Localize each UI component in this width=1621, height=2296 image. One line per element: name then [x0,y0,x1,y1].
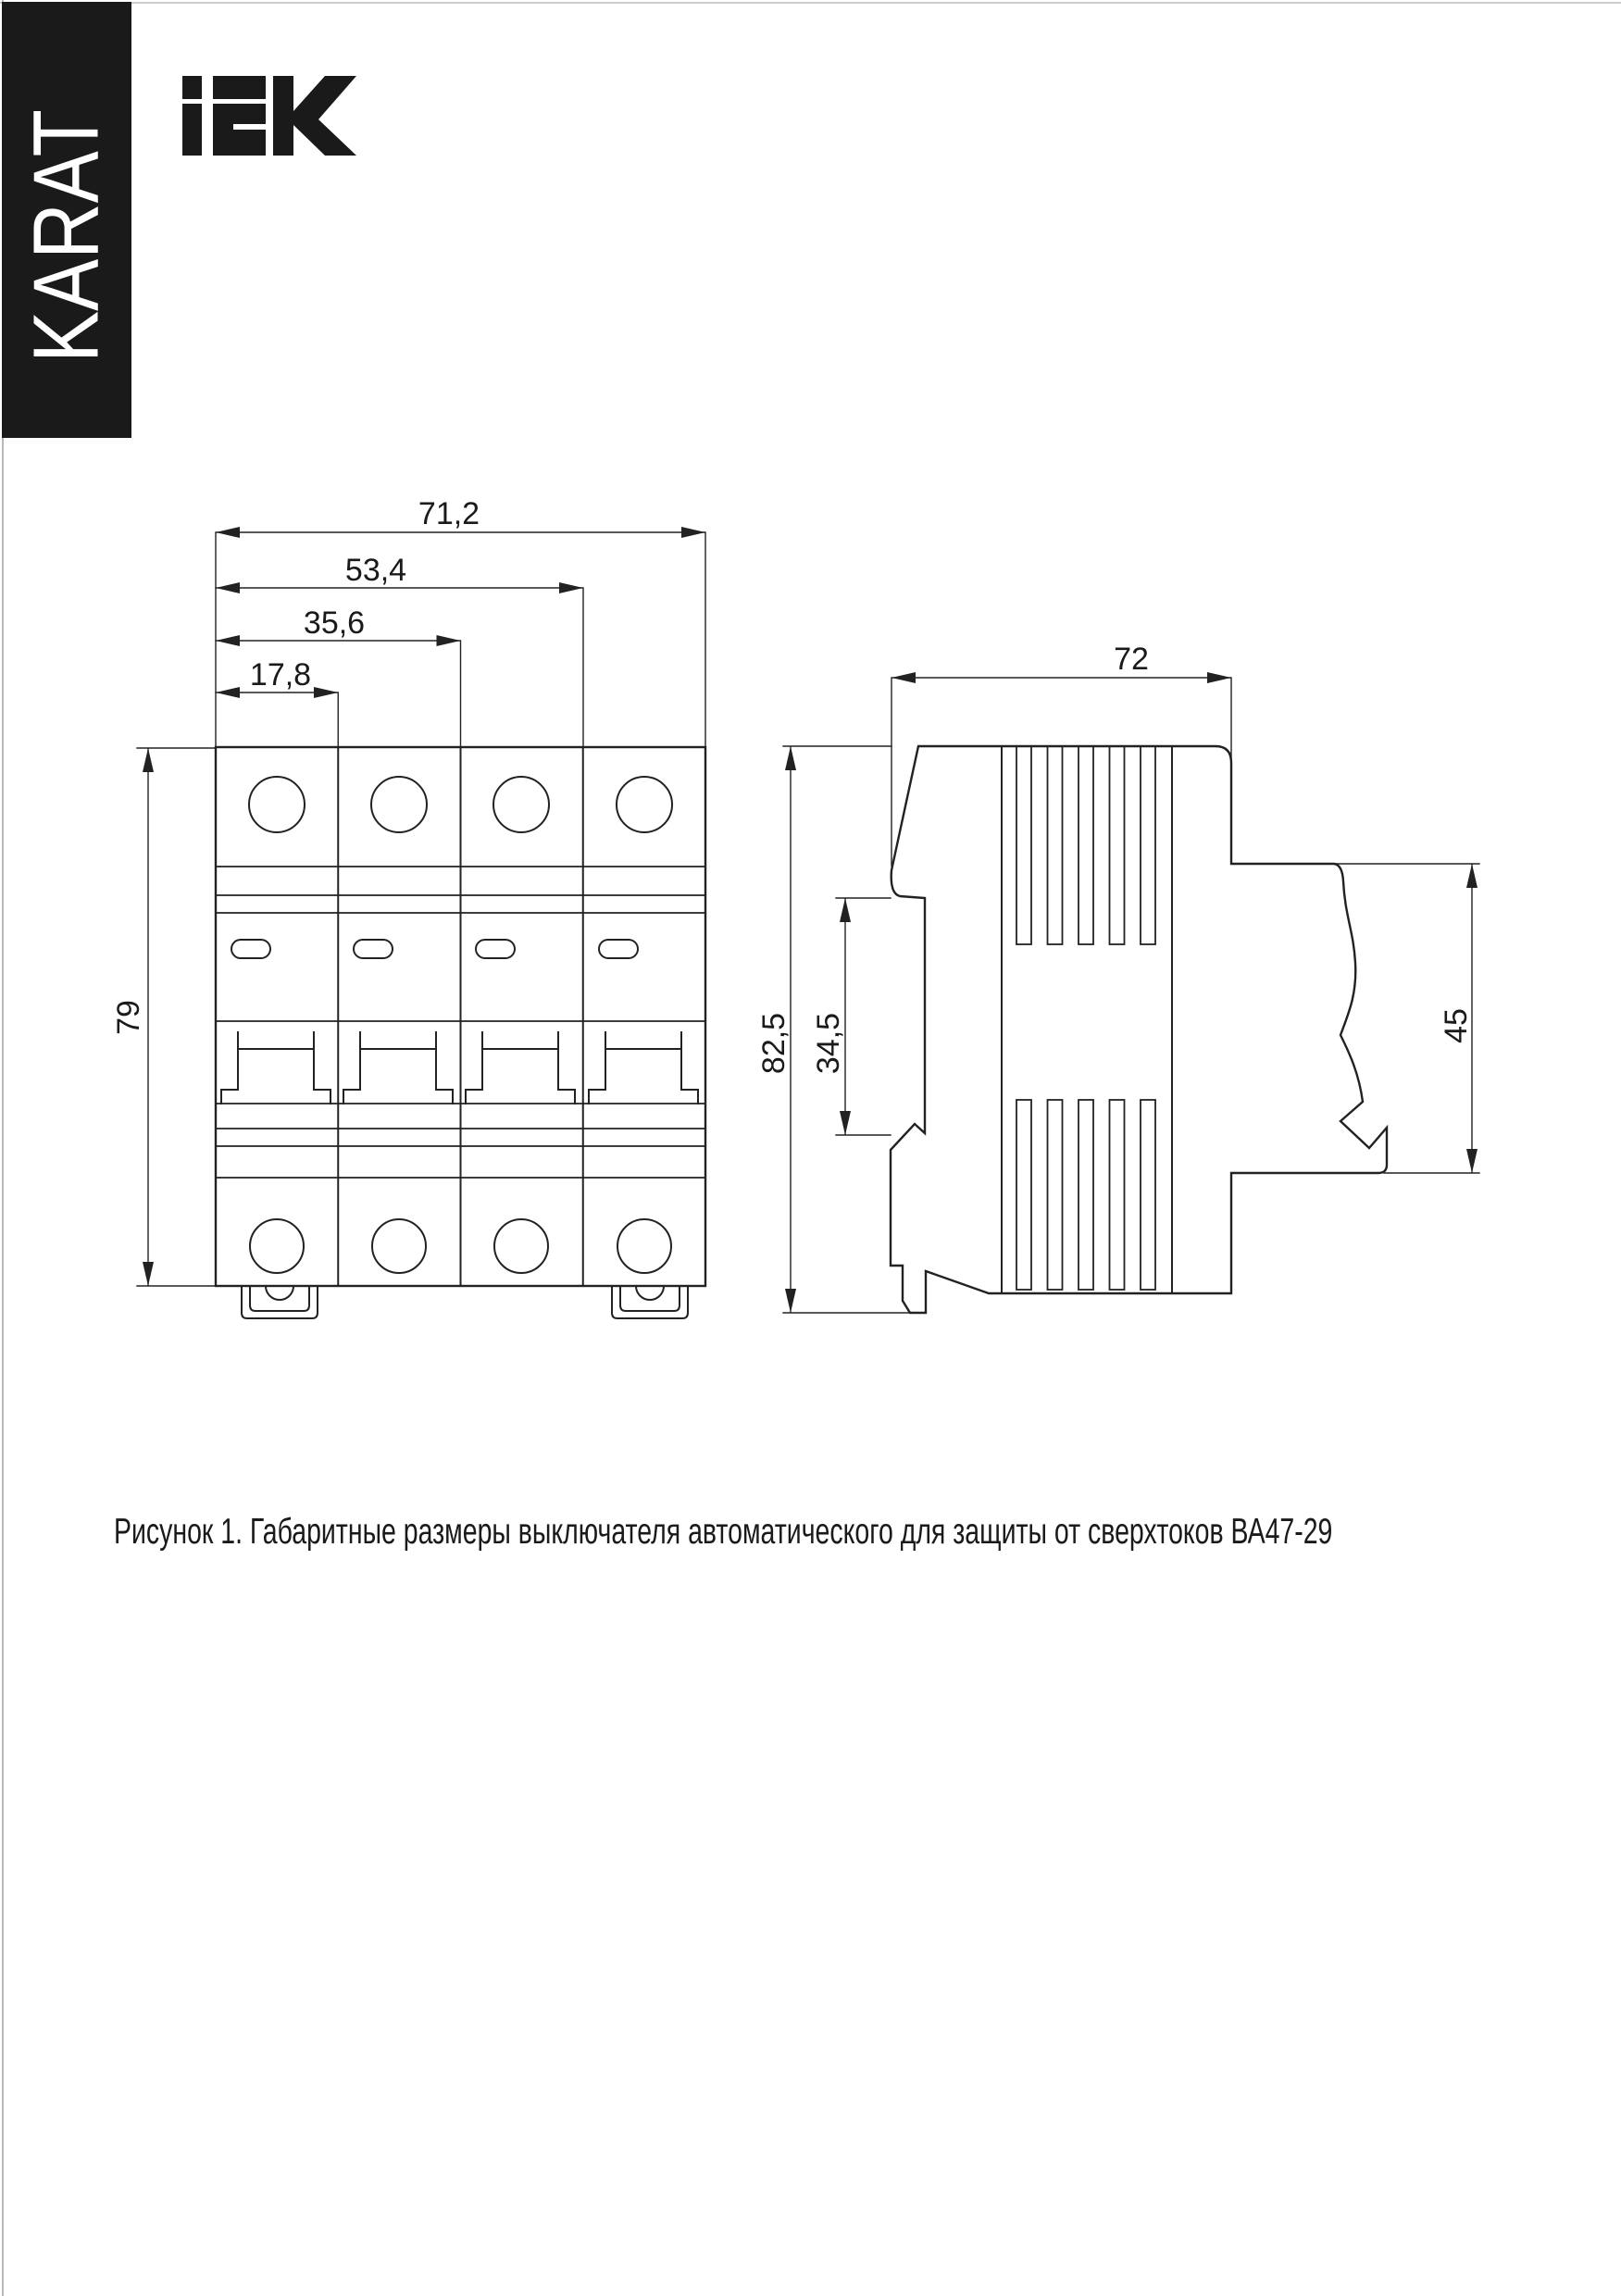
side-vent-slots-lower [1016,1100,1155,1290]
dim-label-front-total-width: 71,2 [418,496,480,531]
dim-label-side-front-height: 45 [1439,1008,1474,1043]
front-pole-dividers [338,747,583,1286]
figure-caption: Рисунок 1. Габаритные размеры выключател… [114,1512,1332,1553]
front-din-clips [242,1286,688,1318]
side-view: 72 82,5 34,5 45 [756,642,1479,1313]
dim-label-front-width-1p: 17,8 [250,657,311,693]
front-marking-windows [231,940,638,958]
dim-label-front-width-2p: 35,6 [304,605,365,641]
iek-logo [182,76,356,156]
front-view: 71,2 53,4 35,6 17,8 79 [111,496,705,1318]
side-body-outline [891,746,1387,1313]
dim-label-side-din-zone: 34,5 [811,1013,846,1074]
technical-drawing: 71,2 53,4 35,6 17,8 79 [0,0,1621,2296]
dim-label-side-depth: 72 [1114,642,1149,677]
side-iek-logo [1016,984,1157,1058]
front-dimension-lines [137,532,705,1286]
dim-label-front-height: 79 [111,1000,146,1035]
dim-label-side-total-height: 82,5 [756,1013,792,1074]
dim-label-front-width-3p: 53,4 [345,553,406,588]
side-vent-slots-upper [1016,746,1155,944]
